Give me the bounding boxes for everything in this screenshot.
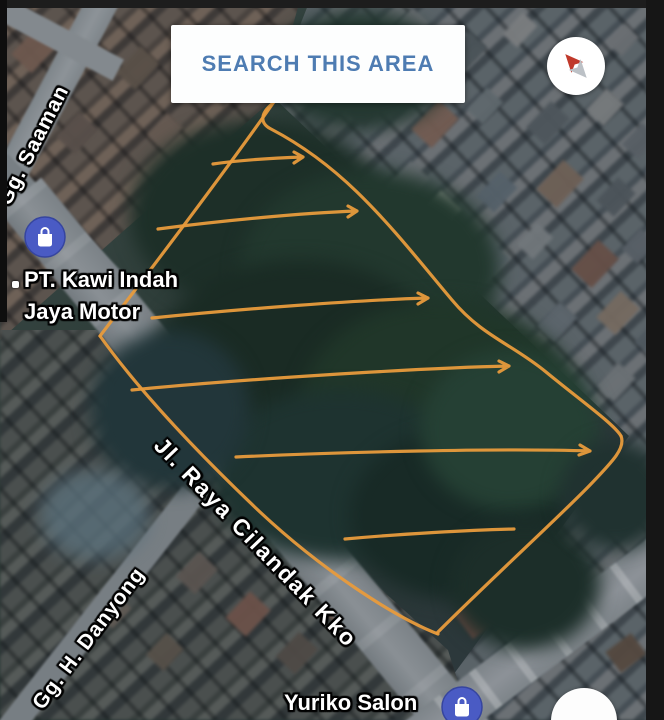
annotation-right-lower-edge <box>437 436 622 633</box>
poi-label-line2: Jaya Motor <box>24 299 140 324</box>
poi-label-pt-kawi-indah-jaya-motor[interactable]: PT. Kawi Indah Jaya Motor <box>24 264 178 328</box>
annotation-hatch <box>236 445 590 457</box>
letterbox-bar-right <box>646 0 664 720</box>
annotation-hatch <box>213 152 303 164</box>
poi-label-yuriko-salon[interactable]: Yuriko Salon <box>284 690 417 716</box>
annotation-road-edge <box>100 336 438 634</box>
compass-needle-icon <box>554 44 598 88</box>
search-this-area-label: SEARCH THIS AREA <box>202 51 435 77</box>
annotation-hatch <box>132 361 509 390</box>
poi-label-line1: PT. Kawi Indah <box>24 267 178 292</box>
letterbox-bar-left <box>0 0 7 322</box>
compass-button[interactable] <box>547 37 605 95</box>
annotation-hatch <box>345 529 514 539</box>
letterbox-bar-top <box>0 0 664 8</box>
annotation-hatch <box>152 293 428 318</box>
poi-dot <box>12 281 19 288</box>
shopping-bag-icon[interactable] <box>441 686 483 720</box>
annotation-right-upper-edge <box>263 104 621 436</box>
maps-app-screen: Gg. Saaman Jl. Raya Cilandak Kko Gg. H. … <box>0 0 664 720</box>
search-this-area-button[interactable]: SEARCH THIS AREA <box>171 25 465 103</box>
shopping-bag-icon[interactable] <box>24 216 66 258</box>
